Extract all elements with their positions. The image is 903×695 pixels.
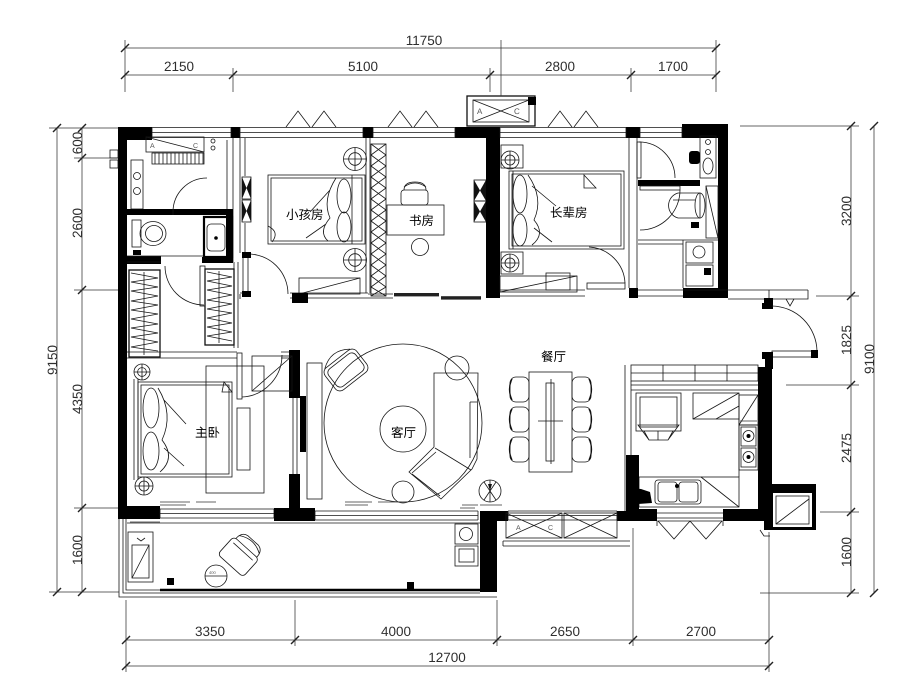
svg-text:2150: 2150: [164, 59, 194, 74]
svg-text:400: 400: [209, 570, 216, 575]
svg-text:1600: 1600: [839, 537, 854, 567]
svg-text:2600: 2600: [70, 208, 85, 238]
svg-text:3350: 3350: [195, 624, 225, 639]
svg-text:A: A: [477, 107, 483, 116]
svg-text:12700: 12700: [428, 650, 466, 665]
svg-text:2475: 2475: [839, 433, 854, 463]
svg-text:2800: 2800: [545, 59, 575, 74]
svg-text:C: C: [193, 143, 198, 150]
svg-text:A: A: [516, 525, 521, 532]
svg-text:C: C: [548, 525, 553, 532]
svg-text:5100: 5100: [348, 59, 378, 74]
svg-text:4350: 4350: [70, 384, 85, 414]
svg-text:1700: 1700: [658, 59, 688, 74]
svg-text:11750: 11750: [406, 33, 443, 48]
svg-text:1600: 1600: [70, 535, 85, 565]
svg-text:A: A: [150, 143, 155, 150]
svg-text:C: C: [514, 107, 520, 116]
svg-text:3200: 3200: [839, 196, 854, 226]
svg-text:9150: 9150: [45, 345, 60, 375]
svg-text:2700: 2700: [686, 624, 716, 639]
svg-text:9100: 9100: [862, 344, 877, 374]
svg-text:4000: 4000: [381, 624, 411, 639]
svg-text:2650: 2650: [550, 624, 580, 639]
svg-text:600: 600: [70, 132, 85, 155]
svg-text:1825: 1825: [839, 325, 854, 355]
